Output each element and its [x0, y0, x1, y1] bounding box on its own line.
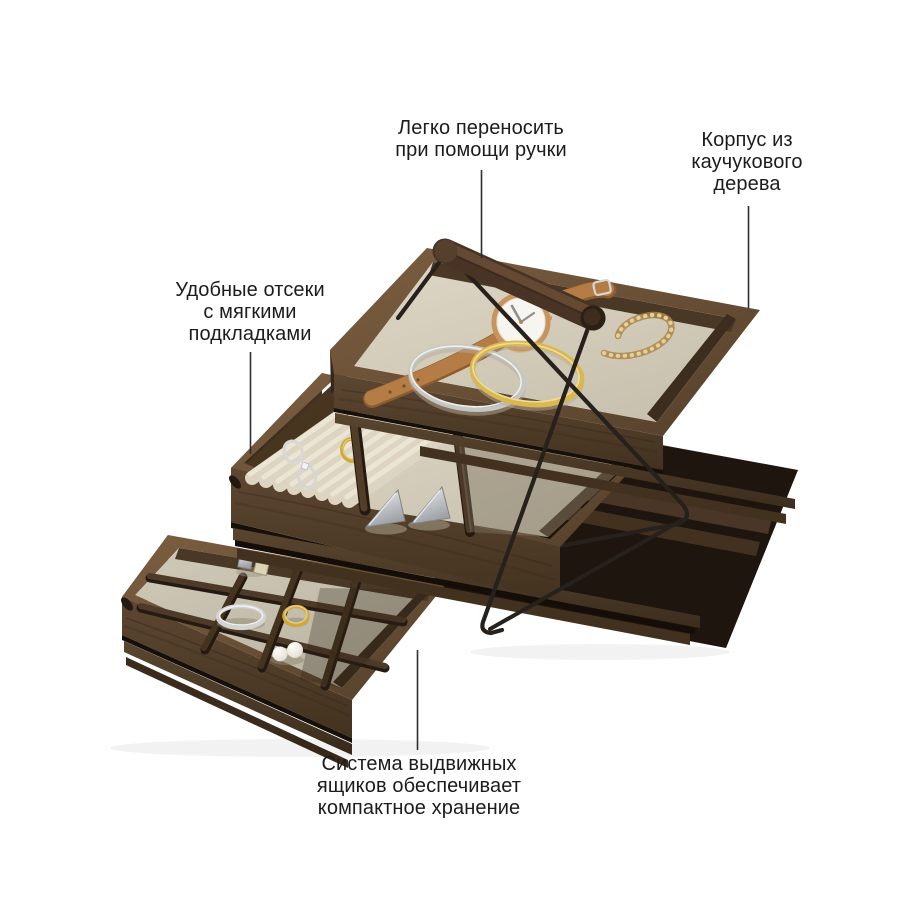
- callout-text: подкладками: [175, 323, 325, 345]
- callout-text: Легко переносить: [395, 117, 567, 139]
- callout-text: ящиков обеспечивает: [317, 775, 521, 797]
- diamond-stone: [301, 462, 309, 470]
- callout-text: дерева: [691, 173, 802, 195]
- callout-text: компактное хранение: [317, 797, 521, 819]
- callout-rubberwood-body: Корпус из каучукового дерева: [691, 129, 802, 195]
- handle-end-cap: [435, 240, 458, 263]
- ground-shadow: [470, 644, 730, 660]
- watch-crown: [546, 315, 552, 321]
- callout-text: при помощи ручки: [395, 139, 567, 161]
- callout-text: Удобные отсеки: [175, 279, 325, 301]
- callout-carry-handle: Легко переносить при помощи ручки: [395, 117, 567, 161]
- callout-text: с мягкими: [175, 301, 325, 323]
- callout-text: каучукового: [691, 151, 802, 173]
- callout-drawer-system: Система выдвижных ящиков обеспечивает ко…: [317, 753, 521, 819]
- callout-soft-compartments: Удобные отсеки с мягкими подкладками: [175, 279, 325, 345]
- callout-text: Система выдвижных: [317, 753, 521, 775]
- callout-text: Корпус из: [691, 129, 802, 151]
